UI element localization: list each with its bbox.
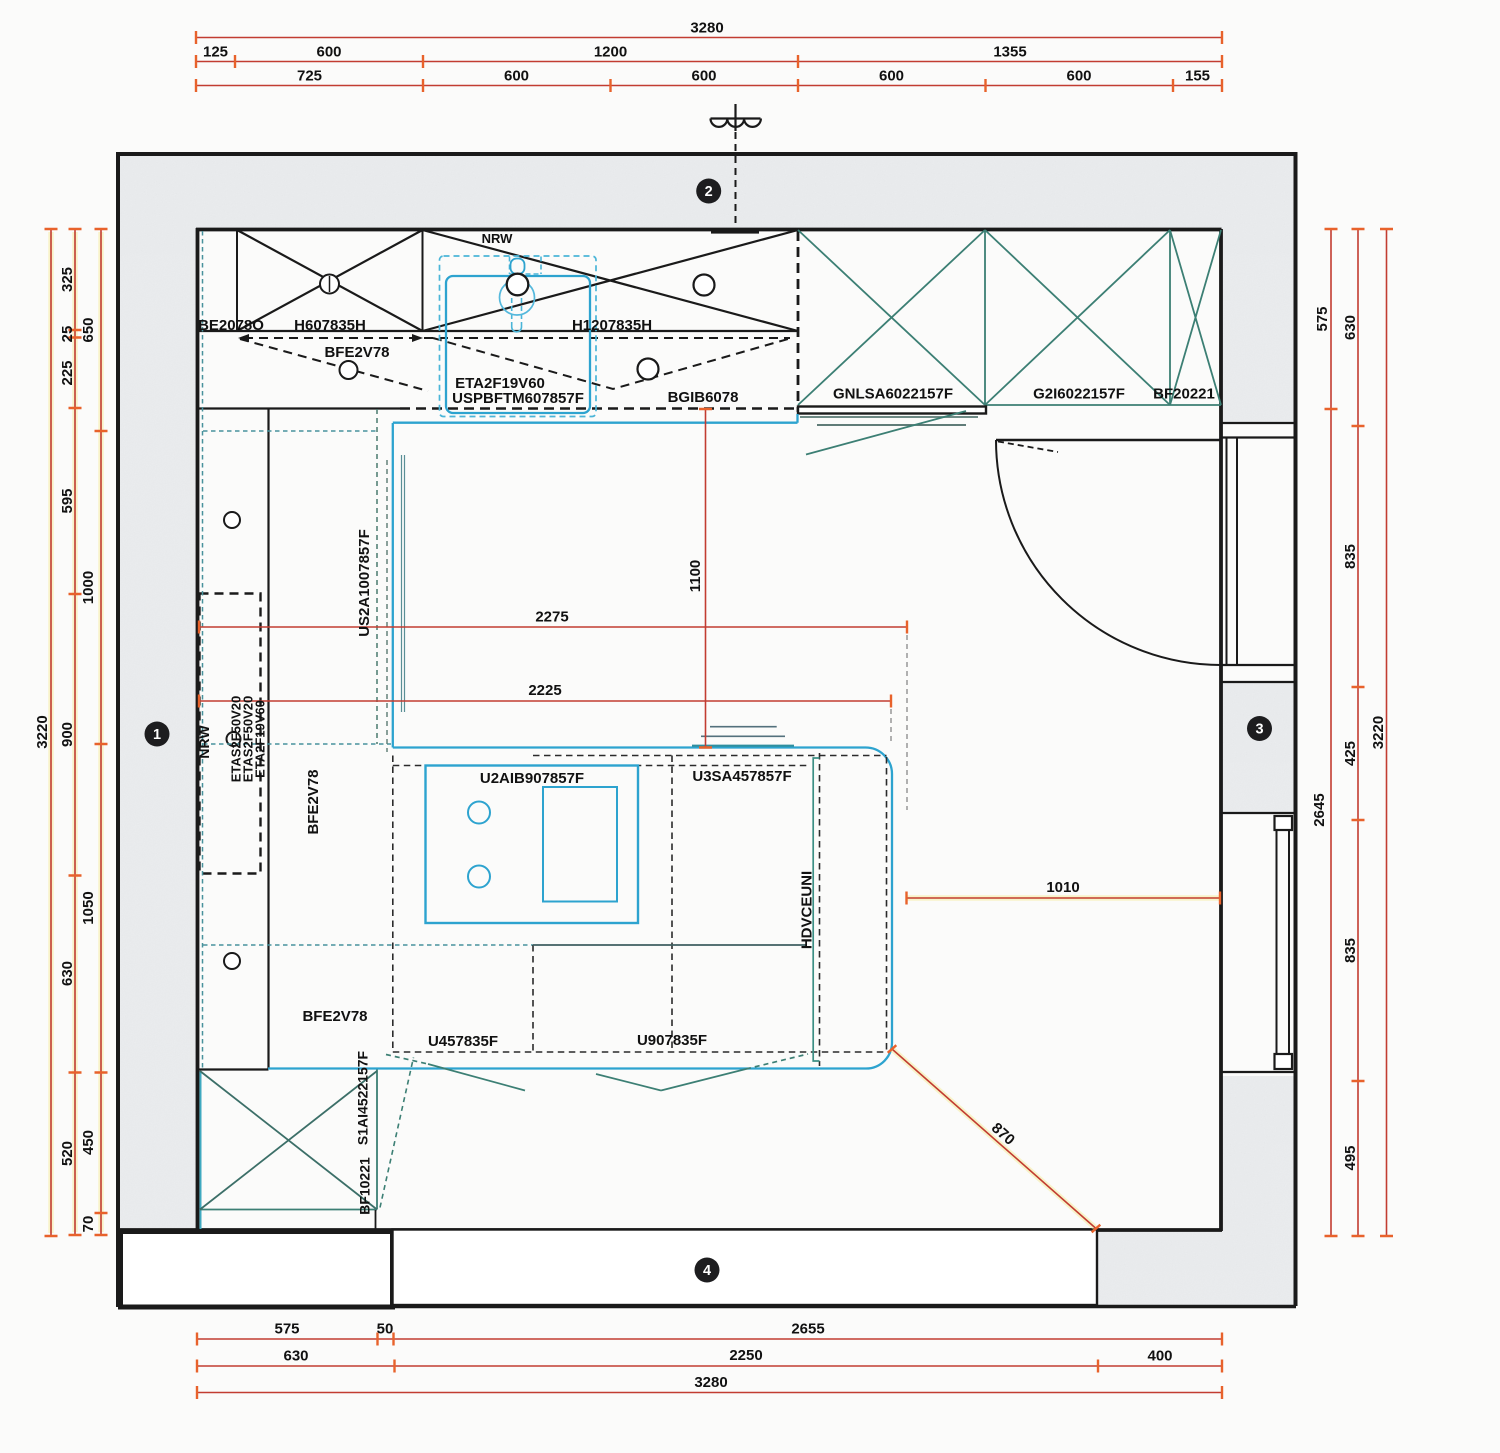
svg-text:NRW: NRW: [196, 725, 212, 759]
svg-text:600: 600: [1066, 68, 1091, 85]
svg-text:575: 575: [274, 1321, 299, 1338]
svg-text:600: 600: [879, 68, 904, 85]
svg-text:4: 4: [703, 1263, 711, 1279]
svg-text:1: 1: [153, 727, 161, 743]
svg-text:3280: 3280: [694, 1374, 727, 1391]
svg-text:630: 630: [1342, 315, 1359, 340]
svg-text:595: 595: [59, 488, 76, 513]
svg-text:1355: 1355: [993, 44, 1026, 61]
svg-text:U2AIB907857F: U2AIB907857F: [480, 770, 584, 787]
svg-text:725: 725: [297, 68, 322, 85]
svg-text:2250: 2250: [729, 1347, 762, 1364]
svg-text:1000: 1000: [80, 571, 97, 604]
svg-text:25: 25: [59, 326, 76, 343]
svg-text:3: 3: [1255, 722, 1263, 738]
svg-text:BGIB6078: BGIB6078: [668, 389, 739, 406]
svg-text:2645: 2645: [1311, 793, 1328, 826]
svg-text:70: 70: [80, 1216, 97, 1233]
svg-text:1200: 1200: [594, 44, 627, 61]
svg-text:630: 630: [59, 961, 76, 986]
svg-text:495: 495: [1342, 1145, 1359, 1170]
svg-text:900: 900: [59, 722, 76, 747]
svg-text:NRW: NRW: [482, 231, 514, 246]
svg-text:H1207835H: H1207835H: [572, 317, 652, 334]
svg-text:2655: 2655: [791, 1321, 824, 1338]
svg-text:575: 575: [1314, 306, 1331, 331]
svg-text:600: 600: [691, 68, 716, 85]
svg-text:450: 450: [80, 1130, 97, 1155]
svg-text:BFE2V78: BFE2V78: [324, 344, 389, 361]
svg-text:630: 630: [283, 1348, 308, 1365]
svg-text:BF20221: BF20221: [1153, 386, 1215, 403]
svg-text:BFE2V78: BFE2V78: [302, 1008, 367, 1025]
svg-text:BF10221: BF10221: [357, 1157, 373, 1215]
svg-text:225: 225: [59, 360, 76, 385]
svg-text:1100: 1100: [687, 560, 704, 593]
svg-text:S1AI4522157F: S1AI4522157F: [355, 1050, 371, 1145]
svg-text:520: 520: [59, 1141, 76, 1166]
svg-text:835: 835: [1342, 938, 1359, 963]
svg-text:BFE2V78: BFE2V78: [305, 769, 322, 834]
svg-text:U3SA457857F: U3SA457857F: [692, 768, 791, 785]
svg-text:650: 650: [80, 317, 97, 342]
svg-text:155: 155: [1185, 68, 1210, 85]
svg-text:2: 2: [705, 184, 713, 200]
svg-text:1050: 1050: [80, 891, 97, 924]
svg-text:325: 325: [59, 267, 76, 292]
svg-text:BE2078O: BE2078O: [198, 317, 264, 334]
svg-text:U457835F: U457835F: [428, 1033, 498, 1050]
svg-text:125: 125: [203, 44, 228, 61]
svg-text:ETA2F19V60: ETA2F19V60: [253, 700, 268, 778]
svg-text:1010: 1010: [1046, 879, 1079, 896]
svg-text:600: 600: [316, 44, 341, 61]
svg-text:US2A1007857F: US2A1007857F: [356, 529, 373, 637]
svg-text:3220: 3220: [1370, 716, 1387, 749]
svg-text:600: 600: [504, 68, 529, 85]
svg-text:HDVCEUNI: HDVCEUNI: [799, 871, 816, 949]
svg-text:G2I6022157F: G2I6022157F: [1033, 386, 1125, 403]
svg-text:GNLSA6022157F: GNLSA6022157F: [833, 386, 953, 403]
svg-text:3220: 3220: [34, 715, 51, 748]
svg-text:2225: 2225: [528, 682, 561, 699]
svg-text:U907835F: U907835F: [637, 1032, 707, 1049]
svg-text:400: 400: [1147, 1348, 1172, 1365]
svg-text:3280: 3280: [690, 20, 723, 37]
svg-text:50: 50: [377, 1321, 394, 1338]
svg-text:USPBFTM607857F: USPBFTM607857F: [452, 390, 584, 407]
svg-text:425: 425: [1342, 741, 1359, 766]
svg-text:2275: 2275: [535, 609, 568, 626]
svg-text:H607835H: H607835H: [294, 317, 366, 334]
svg-text:835: 835: [1342, 544, 1359, 569]
